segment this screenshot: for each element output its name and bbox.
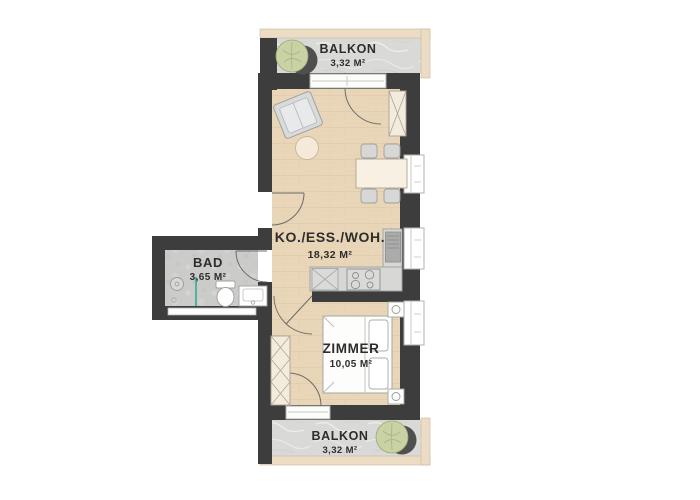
dining-chair [361,144,377,158]
dining-table [356,159,407,188]
wardrobe-living [389,91,406,136]
label-bathroom: BAD 3,65 M² [190,255,227,283]
balcony-door-bottom [286,406,330,419]
wardrobe-bedroom [271,336,290,405]
balcony-top-railing [260,29,430,38]
wall-living-bedroom [312,290,402,302]
window-bedroom [404,301,424,345]
dining-chair [384,144,400,158]
window-kitchen [404,228,424,269]
wall-bath-top [152,236,272,250]
sink [239,286,267,306]
room-name: BALKON [319,42,376,56]
room-name: ZIMMER [323,341,380,356]
room-name: BAD [193,255,223,270]
balcony-door-top [310,74,386,88]
room-name: KO./ESS./WOH. [275,229,385,245]
coffee-table [296,137,319,160]
toilet [216,281,235,307]
balcony-bottom-railing [260,456,430,465]
stove [347,269,380,290]
dining-chair [361,189,377,203]
fridge [386,232,401,262]
dining-chair [384,189,400,203]
room-name: BALKON [311,429,368,443]
balcony-top-railing-side [421,29,430,78]
nightstand-bottom [388,389,404,404]
wall-living-left-upper [258,73,272,192]
room-area: 3,32 M² [322,445,357,456]
balcony-bottom-railing-side [421,418,430,465]
wall-bedroom-bottom [258,405,420,420]
wall-left-lower [258,306,272,464]
room-area: 10,05 M² [330,359,373,370]
room-area: 18,32 M² [308,249,353,261]
room-area: 3,65 M² [190,272,227,283]
floorplan-canvas: BALKON 3,32 M² KO./ESS./WOH. 18,32 M² BA… [0,0,700,500]
kitchen-sink-cabinet [312,269,338,291]
window-bathroom [168,308,256,315]
label-bedroom: ZIMMER 10,05 M² [323,341,380,370]
nightstand-top [388,302,404,317]
room-area: 3,32 M² [330,58,365,69]
